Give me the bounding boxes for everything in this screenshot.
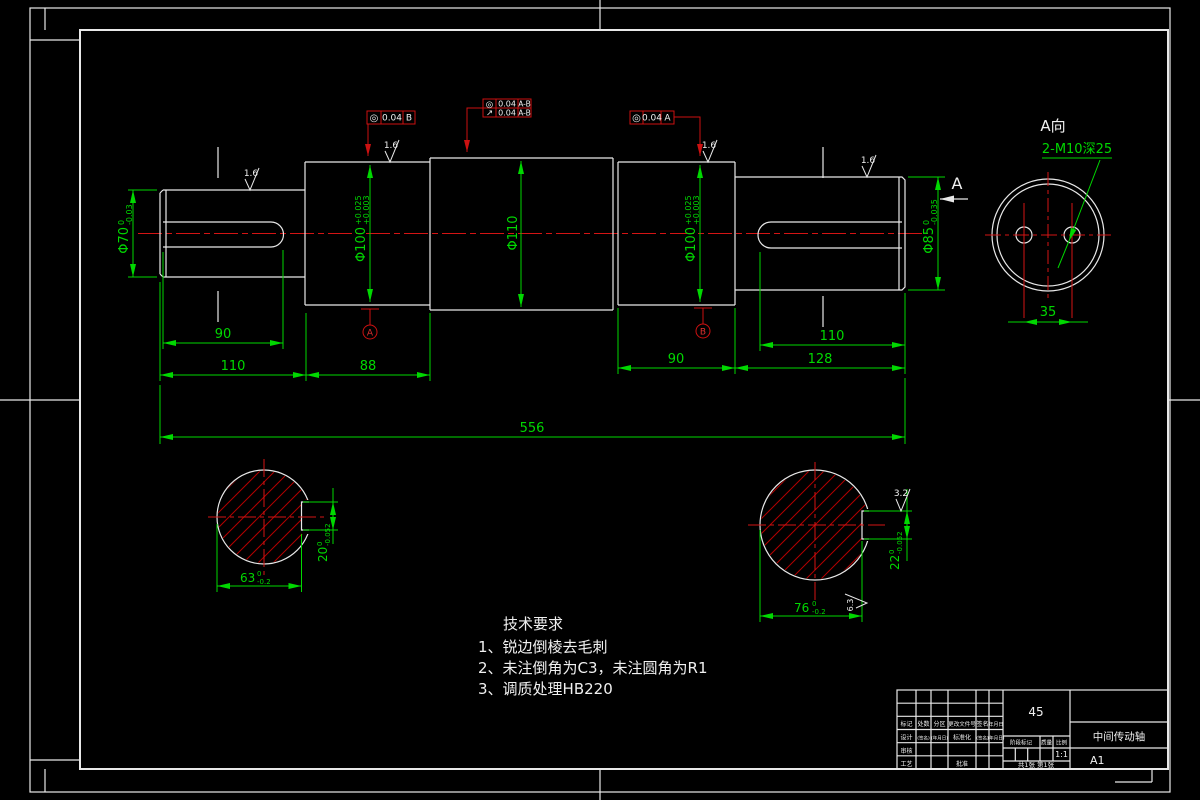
dim-22-sub: -0.052 [896,531,904,554]
datum-b-label: B [700,328,706,338]
roughness-seg5-value: 1.6 [861,156,876,166]
gdt2a-datum: A-B [518,100,531,109]
dim-section-left-63: 63 0 -0.2 [217,524,302,592]
datum-b: B [694,308,712,338]
dim-keyway-right-110: 110 [760,252,905,351]
dim-phi70-sub: -0.03 [125,204,134,225]
dim-76-sup: 0 [812,600,816,608]
label-weight: 质量 [1041,739,1053,747]
dim-phi70-text: Φ70 [117,227,132,254]
dim-keyway-left-90: 90 [163,250,283,349]
gdt1-datum: B [406,114,412,124]
roughness-mark-keyway-side: 3.2 [894,489,910,511]
gdt2b-symbol: ↗ [486,109,493,119]
gdt2b-value: 0.04 [498,109,516,118]
roughness-marks: 1.6 1.6 1.6 1.6 [244,140,876,190]
dim-76-text: 76 [794,601,809,615]
tech-requirements: 技术要求 1、锐边倒棱去毛刺 2、未注倒角为C3，未注圆角为R1 3、调质处理H… [478,615,708,698]
label-count: 处数 [917,720,929,728]
label-doc: 更改文件号 [948,720,976,728]
revision-table: 标记 处数 分区 更改文件号 签名 年月日 设计 (签名) (年月日) 标准化 … [897,690,1005,769]
part-name: 中间传动轴 [1093,730,1146,743]
tech-req-item-2: 2、未注倒角为C3，未注圆角为R1 [478,659,708,677]
dim-phi100L-text: Φ100 [354,227,369,262]
label-stage: 阶段标记 [1010,739,1033,747]
holes-note-text: 2-M10深25 [1042,142,1112,157]
cad-drawing-sheet: Φ70 0 -0.03 90 110 88 [0,0,1200,800]
dim-556-text: 556 [520,421,545,436]
gdt2b-datum: A-B [518,109,531,118]
roughness-seg4-value: 1.6 [702,141,717,151]
roughness-seg2-value: 1.6 [384,141,399,151]
roughness-mark-seg5: 1.6 [861,155,876,177]
gdt3-symbol: ◎ [632,113,641,124]
roughness-keyway-side-value: 3.2 [894,489,908,499]
title-block: 标记 处数 分区 更改文件号 签名 年月日 设计 (签名) (年月日) 标准化 … [897,690,1168,769]
roughness-mark-keyway-flat: 6.3 [845,594,867,611]
dim-phi100-right: Φ100 +0.025 +0.003 [684,165,701,302]
label-ymd-2: (年月日) [987,735,1004,742]
roughness-keyway-flat-value: 6.3 [846,599,855,612]
label-mark: 标记 [900,720,912,728]
dim-110R-text: 110 [820,329,845,344]
dim-20-sup: 0 [316,542,324,546]
material-value: 45 [1028,705,1043,719]
tech-req-item-1: 1、锐边倒棱去毛刺 [478,638,608,656]
dimensions-front-view: Φ70 0 -0.03 90 110 88 [117,161,945,444]
dim-63-text: 63 [240,571,255,585]
dim-phi85-sub: -0.035 [930,199,939,225]
dim-seg4-90: 90 [618,308,735,374]
dim-phi100-left: Φ100 +0.025 +0.003 [354,165,371,302]
dim-total-556: 556 [160,378,905,444]
material-scale-block: 45 阶段标记 质量 比例 1:1 共1张 第1张 [1003,705,1070,769]
gdt2a-value: 0.04 [498,100,516,109]
gdt-frame-2: ◎ 0.04 A-B ↗ 0.04 A-B [467,99,531,152]
dim-phi100L-sub: +0.003 [362,195,371,225]
label-sig-1: (签名) [917,735,930,742]
dim-phi110-text: Φ110 [506,215,521,250]
dim-35-text: 35 [1040,305,1057,320]
section-left: 63 0 -0.2 20 0 -0.052 [141,455,381,592]
gdt1-value: 0.04 [382,114,402,124]
dim-phi110: Φ110 [506,161,521,307]
roughness-seg1-value: 1.6 [244,169,259,179]
dim-seg1-110: 110 [160,282,306,381]
dim-20-text: 20 [316,547,330,562]
dim-hole-span-35: 35 [1008,305,1088,322]
label-approve: 批准 [956,760,968,768]
dim-110L-text: 110 [221,359,246,374]
dim-22-text: 22 [888,555,902,570]
sheet-size: A1 [1090,754,1105,767]
view-a: A向 2-M10深25 35 [985,117,1112,322]
roughness-mark-seg2: 1.6 [384,140,399,162]
gdt-frame-3: ◎ 0.04 A [630,111,700,156]
view-dir-label: A [952,174,963,193]
datum-a-label: A [367,329,374,339]
dim-seg2-88: 88 [306,313,430,381]
dim-63-sub: -0.2 [257,578,271,586]
gdt1-symbol: ◎ [370,113,379,124]
view-a-title: A向 [1040,117,1065,135]
dim-63-sup: 0 [257,570,261,578]
view-direction-arrow: A [940,174,968,199]
datum-a: A [361,309,379,339]
dim-phi85-text: Φ85 [922,227,937,254]
dim-90L-text: 90 [215,327,232,342]
label-ymd-1: (年月日) [931,735,948,742]
gdt-frames: ◎ 0.04 B ◎ 0.04 A-B ↗ 0.04 A-B ◎ 0.04 A [361,99,712,339]
dim-128-text: 128 [808,352,833,367]
name-block: 中间传动轴 A1 [1070,722,1168,767]
section-left-hatch [141,455,381,575]
dim-88-text: 88 [360,359,377,374]
tech-req-title: 技术要求 [503,615,563,633]
label-standard: 标准化 [953,734,971,742]
dim-76-sub: -0.2 [812,608,826,616]
label-zone: 分区 [933,720,945,728]
dim-phi100R-text: Φ100 [684,227,699,262]
dim-22-sup: 0 [888,550,896,554]
label-audit: 审核 [900,747,912,755]
label-design: 设计 [900,734,912,742]
gdt3-value: 0.04 [642,114,662,124]
drawing-canvas: Φ70 0 -0.03 90 110 88 [0,0,1200,800]
dim-phi100R-sub: +0.003 [692,195,701,225]
label-date: 年月日 [988,721,1003,728]
dim-20-sub: -0.052 [324,523,332,546]
section-right: 76 0 -0.2 22 0 -0.052 3.2 6.3 [665,450,965,622]
dim-90R-text: 90 [668,352,685,367]
roughness-mark-seg1: 1.6 [244,168,259,190]
sheet-count: 共1张 第1张 [1018,760,1055,769]
gdt3-datum: A [664,114,671,124]
scale-value: 1:1 [1055,750,1068,759]
label-sign: 签名 [976,720,988,728]
label-ratio: 比例 [1056,739,1068,747]
tech-req-item-3: 3、调质处理HB220 [478,680,613,698]
label-process: 工艺 [900,760,912,768]
roughness-mark-seg4: 1.6 [702,140,717,162]
